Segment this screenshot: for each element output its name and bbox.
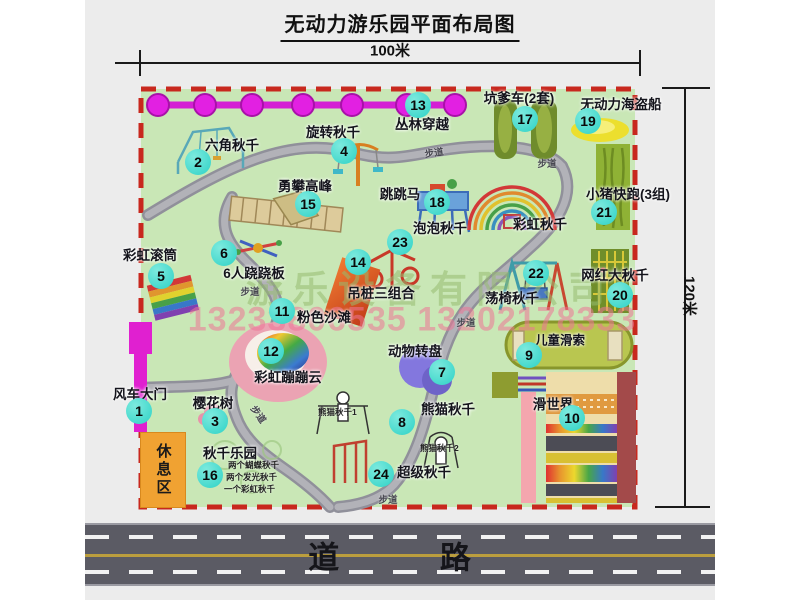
attraction-14-number: 14 — [345, 249, 371, 275]
attraction-20-number: 20 — [607, 282, 633, 308]
rest-area-label: 休息区 — [153, 443, 174, 497]
attraction-7-label: 动物转盘 — [388, 340, 442, 360]
road-label: 道 路 — [308, 532, 517, 577]
panda-swing-2-note: 熊猫秋千2 — [420, 443, 459, 454]
attraction-23-number: 23 — [387, 229, 413, 255]
attraction-17-label: 坑爹车(2套) — [484, 87, 555, 107]
attraction-5-label: 彩虹滚筒 — [123, 244, 177, 264]
attraction-12-label: 彩虹蹦蹦云 — [254, 366, 322, 386]
attraction-4-number: 4 — [331, 138, 357, 164]
attraction-11-number: 11 — [269, 298, 295, 324]
attraction-16-label: 秋千乐园 — [203, 442, 257, 462]
attraction-5-number: 5 — [148, 263, 174, 289]
attraction-22-label: 荡椅秋千 — [485, 287, 539, 307]
attraction-12-number: 12 — [258, 338, 284, 364]
swing-park-note-3: 一个彩虹秋千 — [224, 484, 275, 495]
attraction-10-number: 10 — [559, 405, 585, 431]
path-label: 步道 — [456, 315, 475, 329]
dimension-height-label: 120米 — [680, 276, 701, 316]
attraction-3-number: 3 — [202, 408, 228, 434]
path-label: 步道 — [240, 284, 259, 298]
attraction-24-number: 24 — [368, 461, 394, 487]
page-title: 无动力游乐园平面布局图 — [281, 8, 520, 42]
attraction-6-label: 6人跷跷板 — [223, 262, 285, 282]
attraction-24-label: 超级秋千 — [397, 461, 451, 481]
attraction-23-label: 泡泡秋千 — [413, 217, 467, 237]
swing-park-note-1: 两个蝴蝶秋千 — [228, 460, 279, 471]
attraction-8-number: 8 — [389, 409, 415, 435]
attraction-8-label: 熊猫秋千 — [421, 398, 475, 418]
attraction-22-number: 22 — [523, 260, 549, 286]
attraction-9-number: 9 — [516, 342, 542, 368]
rest-area: 休息区 — [140, 432, 186, 508]
path-label: 步道 — [537, 156, 556, 170]
attraction-6-number: 6 — [211, 240, 237, 266]
attraction-17-number: 17 — [512, 106, 538, 132]
attraction-15-number: 15 — [295, 191, 321, 217]
rainbow-swing-label: 彩虹秋千 — [513, 213, 567, 233]
attraction-4-label: 旋转秋千 — [306, 121, 360, 141]
attraction-20-label: 网红大秋千 — [581, 264, 649, 284]
dimension-width-label: 100米 — [370, 40, 410, 61]
attraction-9-label: 儿童滑索 — [535, 330, 585, 349]
path-label: 步道 — [378, 492, 397, 506]
attraction-2-number: 2 — [185, 149, 211, 175]
attraction-2-label: 六角秋千 — [205, 134, 259, 154]
dimension-tick — [662, 87, 710, 89]
attraction-16-number: 16 — [197, 462, 223, 488]
attraction-19-number: 19 — [575, 108, 601, 134]
attraction-18-number: 18 — [424, 189, 450, 215]
panda-swing-1-note: 熊猫秋千1 — [318, 407, 357, 418]
attraction-14-label: 吊桩三组合 — [347, 282, 415, 302]
road: 道 路 — [85, 523, 715, 586]
attraction-1-number: 1 — [126, 398, 152, 424]
swing-park-note-2: 两个发光秋千 — [226, 472, 277, 483]
attraction-21-number: 21 — [591, 199, 617, 225]
park-plan-canvas: 无动力游乐园平面布局图 100米 120米 — [0, 0, 800, 600]
dimension-line-top — [140, 62, 640, 64]
attraction-7-number: 7 — [429, 359, 455, 385]
dimension-tick — [655, 506, 710, 508]
dimension-tick — [115, 62, 140, 64]
dimension-tick — [639, 50, 641, 76]
attraction-18-label: 跳跳马 — [380, 183, 421, 203]
attraction-11-label: 粉色沙滩 — [297, 306, 351, 326]
path-label: 步道 — [424, 144, 445, 161]
attraction-13-number: 13 — [405, 92, 431, 118]
